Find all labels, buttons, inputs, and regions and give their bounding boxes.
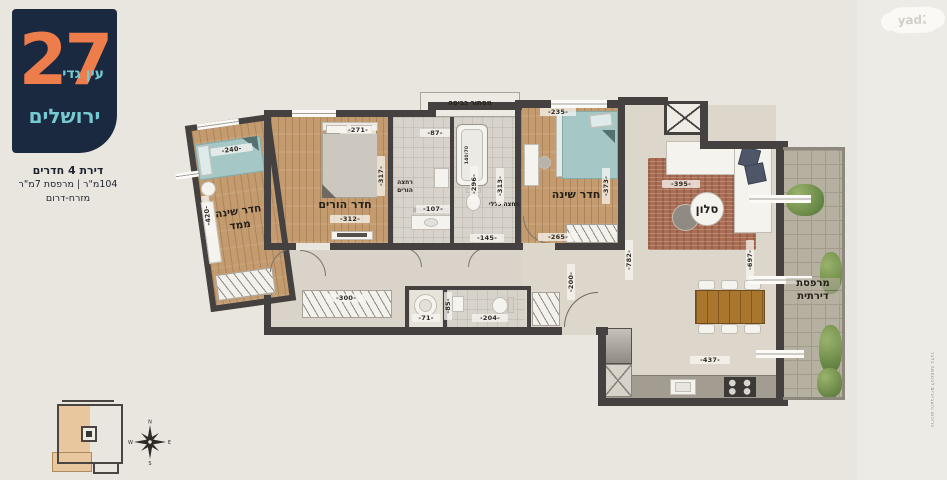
dim-782: -782- [625,240,633,280]
dim-312: -312- [330,215,370,223]
dining-chair [721,324,738,334]
compass-letter-n: N [148,420,152,426]
project-name: עין גדי [62,66,104,82]
wall [450,117,454,247]
door-gap [523,243,555,250]
room-label-living: סלון [690,203,724,216]
desk [524,144,539,186]
project-city: ירושלים [12,104,117,128]
closet-hatch [532,292,560,326]
compass-rose: N S W E [128,418,172,466]
dining-chair [698,280,715,290]
dim-697: -697- [746,240,754,280]
room-label-parents: חדר הורים [302,199,388,212]
listing-orientation: מזרח-דרום [8,193,128,204]
washing-machine-drum [419,299,432,312]
project-logo-card: 27 עין גדי ירושלים [12,9,117,153]
wall [618,97,668,105]
washing-machine-cabinet [434,168,449,188]
wall [515,102,521,250]
blanket-fold [322,184,336,198]
project-number: 27 [12,25,117,95]
wall [700,141,788,149]
room-label-balcony: מרפסת [786,278,840,290]
wall [598,398,788,406]
wall [264,110,271,250]
balcony-window [749,195,811,203]
wall [405,288,409,328]
wall [264,110,434,117]
balcony-rail [783,147,845,150]
window [292,110,336,117]
vertical-disclaimer: הריהוט והאביזרים להמחשה בלבד [929,352,934,428]
kitchen-sink-basin [675,382,691,392]
toilet-tank [508,297,514,313]
dim-317: -317- [377,156,385,196]
dim-296: -296- [470,166,478,202]
dim-373: -373- [602,168,610,204]
dim-107: -107- [416,205,450,213]
balcony-window [756,350,804,358]
mini-map-line [62,400,114,402]
desk-chair [538,156,551,169]
balcony-rail [783,397,845,400]
dim-145: -145- [470,234,504,242]
dim-265: -265- [538,233,578,241]
wall [264,327,562,335]
dim-200: -200- [567,264,575,300]
sink-basin [424,218,438,227]
dining-table [695,290,765,324]
floor-plan-page: 27 עין גדי ירושלים דירת 4 חדרים 104מ"ר |… [0,0,947,480]
dim-204: -204- [472,314,508,322]
room-label-general-bath: רחצה כללי [482,202,526,209]
plant [819,325,842,373]
yad2-logo-text: yad2 [897,12,930,27]
mini-map-core-dot [86,431,92,437]
dresser-detail [337,233,367,237]
dim-313: -313- [496,168,504,204]
mini-map-outline [93,462,119,474]
wall [395,243,517,250]
dining-chair [721,280,738,290]
sofa-pillow [744,162,767,185]
wall [618,100,625,250]
dim-71: -71- [412,314,440,322]
dim-87: -87- [420,129,450,137]
dim-271: -271- [340,126,376,134]
dining-chair [744,324,761,334]
room-label-parents-bath-2: הורים [390,188,420,195]
room-label-balcony-2: דירתית [786,291,840,303]
stove [724,377,756,397]
dining-chair [698,324,715,334]
pillow [589,113,612,128]
dim-235: -235- [540,108,576,116]
toilet [492,297,508,314]
wall [598,330,606,405]
dim-395: -395- [662,180,700,188]
balcony-rail [842,150,845,400]
compass-letter-e: E [168,440,171,446]
dim-300: -300- [326,294,366,302]
wall [527,288,531,328]
listing-area: 104מ"ר | מרפסת 7מ"ר [3,179,133,190]
room-label-parents-bath: רחצה [390,180,420,187]
plant [817,368,842,398]
room-label-laundry-niche: מסתור כביסה [422,99,518,107]
dim-85: -85- [444,292,452,320]
yad2-logo: yad2 [888,6,941,34]
kitchen-cabinet [604,364,632,397]
compass-letter-s: S [148,461,151,466]
dim-437: -437- [690,356,730,364]
blanket-fold [602,130,615,143]
bathtub-size-label: 140/70 [464,142,472,168]
door-gap [296,243,330,250]
listing-title: דירת 4 חדרים [8,164,128,177]
compass-letter-w: W [128,440,133,446]
window [551,100,607,108]
wall [405,286,531,290]
sink-vanity [452,296,464,312]
refrigerator [604,328,632,364]
